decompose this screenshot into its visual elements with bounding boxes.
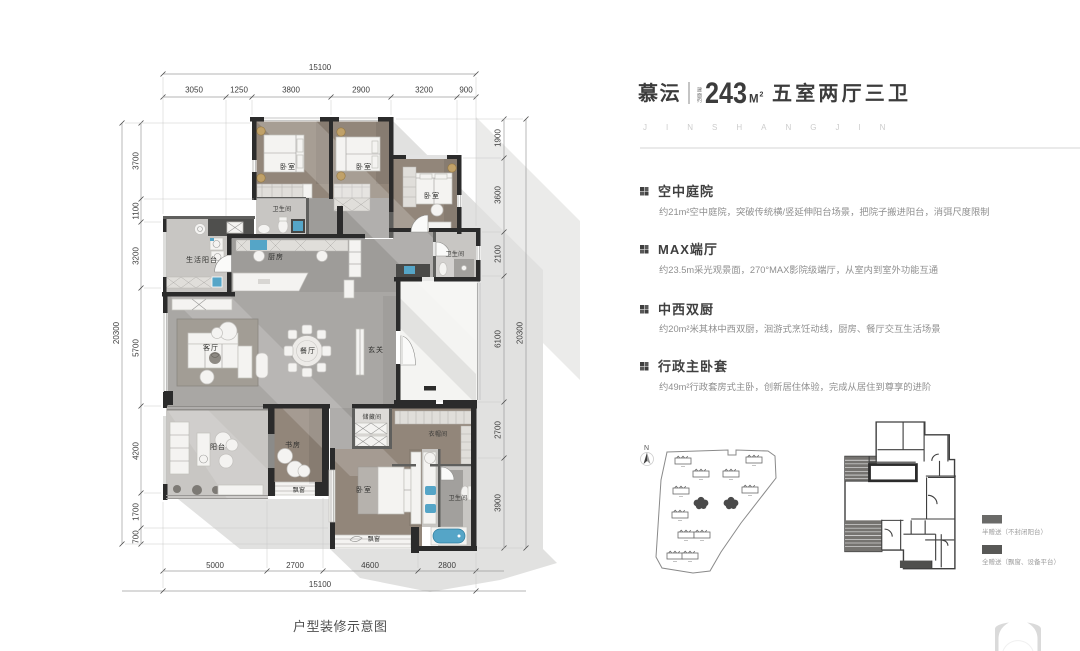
svg-text:3600: 3600	[494, 186, 503, 204]
svg-text:厨房: 厨房	[268, 252, 284, 261]
svg-text:5700: 5700	[132, 339, 141, 357]
svg-text:卧室: 卧室	[356, 162, 372, 171]
svg-text:700: 700	[132, 530, 141, 544]
svg-text:MAX端厅: MAX端厅	[658, 242, 718, 257]
svg-text:6100: 6100	[494, 330, 503, 348]
svg-text:约20m²米其林中西双厨，洄游式烹饪动线，厨房、餐厅交互生活: 约20m²米其林中西双厨，洄游式烹饪动线，厨房、餐厅交互生活场景	[659, 323, 941, 334]
svg-text:卫生间: 卫生间	[273, 205, 292, 213]
svg-text:3800: 3800	[282, 86, 300, 95]
svg-text:客厅: 客厅	[203, 343, 219, 352]
svg-text:3050: 3050	[185, 86, 203, 95]
svg-text:书房: 书房	[285, 440, 301, 449]
svg-text:900: 900	[459, 86, 473, 95]
svg-text:约21m²空中庭院，突破传统横/竖延伸阳台场景，把院子搬进阳: 约21m²空中庭院，突破传统横/竖延伸阳台场景，把院子搬进阳台，消弭尺度限制	[659, 206, 990, 217]
svg-text:1700: 1700	[132, 503, 141, 521]
svg-text:五室两厅三卫: 五室两厅三卫	[772, 81, 911, 105]
svg-text:JINSHANGJIN: JINSHANGJIN	[643, 123, 904, 132]
svg-text:飘窗: 飘窗	[293, 486, 306, 494]
svg-text:1250: 1250	[230, 86, 248, 95]
svg-text:3700: 3700	[132, 152, 141, 170]
svg-text:5000: 5000	[206, 561, 224, 570]
svg-text:卫生间: 卫生间	[449, 494, 468, 502]
svg-text:阳台: 阳台	[210, 442, 226, 451]
svg-text:2900: 2900	[352, 86, 370, 95]
svg-text:卧室: 卧室	[424, 191, 440, 200]
svg-text:卧室: 卧室	[356, 485, 372, 494]
svg-text:生活阳台: 生活阳台	[186, 255, 218, 264]
svg-text:2: 2	[760, 92, 764, 99]
svg-text:空中庭院: 空中庭院	[658, 184, 714, 199]
svg-text:20300: 20300	[516, 321, 525, 344]
svg-text:中西双厨: 中西双厨	[658, 302, 714, 317]
svg-text:半赠送（不封闭阳台）: 半赠送（不封闭阳台）	[982, 527, 1047, 536]
svg-text:慕沄: 慕沄	[638, 82, 681, 105]
svg-text:行政主卧套: 行政主卧套	[657, 359, 728, 374]
svg-text:4200: 4200	[132, 442, 141, 460]
svg-text:2700: 2700	[494, 421, 503, 439]
svg-text:卧室: 卧室	[280, 162, 296, 171]
svg-text:户型装修示意图: 户型装修示意图	[293, 619, 388, 634]
svg-text:约: 约	[697, 97, 702, 104]
svg-text:N: N	[644, 445, 649, 452]
svg-text:20300: 20300	[112, 321, 121, 344]
svg-text:玄关: 玄关	[368, 345, 384, 354]
svg-text:约49m²行政套房式主卧，创新居住体验，完成从居住到尊享的进: 约49m²行政套房式主卧，创新居住体验，完成从居住到尊享的进阶	[659, 381, 931, 392]
svg-text:15100: 15100	[309, 580, 332, 589]
svg-text:2800: 2800	[438, 561, 456, 570]
svg-text:243: 243	[705, 77, 747, 110]
svg-text:卫生间: 卫生间	[446, 250, 465, 258]
svg-text:2700: 2700	[286, 561, 304, 570]
svg-text:衣帽间: 衣帽间	[429, 430, 448, 438]
svg-text:3900: 3900	[494, 494, 503, 512]
svg-text:1900: 1900	[494, 129, 503, 147]
svg-text:3200: 3200	[132, 247, 141, 265]
svg-text:储藏间: 储藏间	[363, 413, 382, 421]
svg-text:餐厅: 餐厅	[300, 346, 316, 355]
svg-text:约23.5m采光观景面，270°MAX影院级端厅，从室内到室: 约23.5m采光观景面，270°MAX影院级端厅，从室内到室外功能互通	[659, 264, 938, 275]
svg-text:飘窗: 飘窗	[368, 535, 381, 543]
svg-text:3200: 3200	[415, 86, 433, 95]
svg-text:4600: 4600	[361, 561, 379, 570]
svg-text:15100: 15100	[309, 63, 332, 72]
svg-text:全赠送（飘窗、设备平台）: 全赠送（飘窗、设备平台）	[982, 557, 1060, 566]
svg-text:M: M	[749, 94, 759, 106]
svg-text:1100: 1100	[132, 202, 141, 220]
svg-text:2100: 2100	[494, 245, 503, 263]
